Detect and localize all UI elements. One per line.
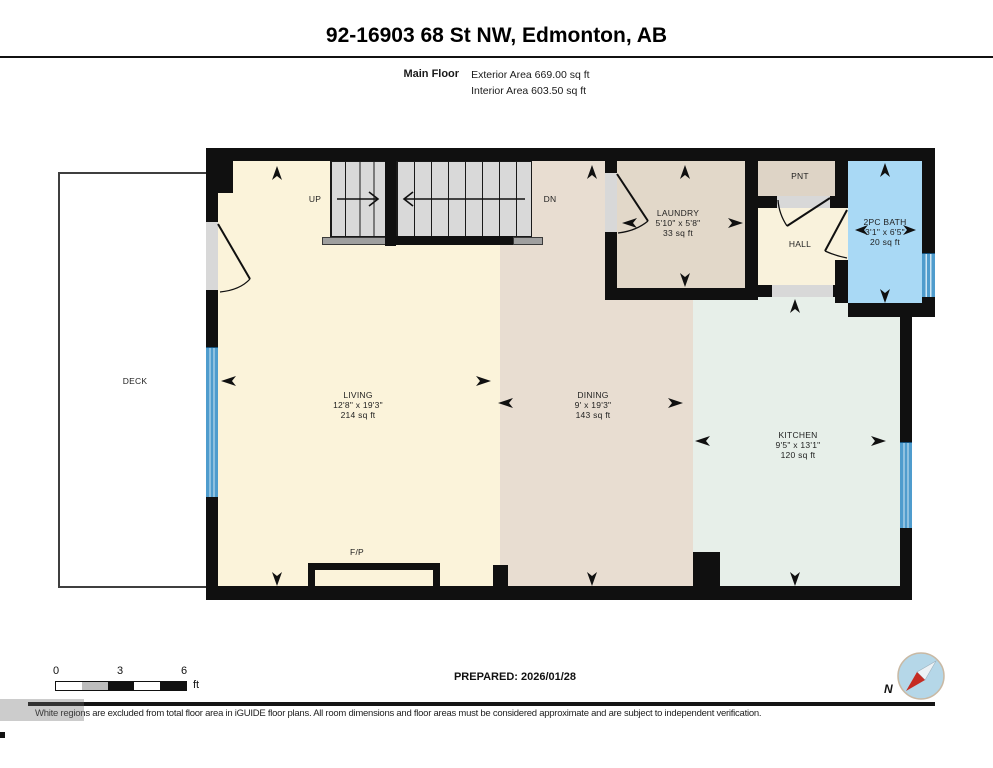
scale-seg-4: [134, 682, 160, 690]
stairs-down: [396, 161, 532, 237]
floor-summary: Main Floor Exterior Area 669.00 sq ft In…: [0, 67, 993, 99]
bath-window: [922, 253, 935, 299]
wall-bath-bottom: [848, 303, 935, 317]
wall-stub-dining-kitchen: [693, 552, 720, 586]
disclaimer-text: White regions are excluded from total fl…: [35, 708, 955, 719]
laundry-label: LAUNDRY5'10" x 5'8"33 sq ft: [618, 208, 738, 238]
dining-label: DINING9' x 19'3"143 sq ft: [533, 390, 653, 420]
pantry-door-opening: [777, 196, 830, 208]
fireplace-label: F/P: [327, 547, 387, 557]
wall-top-left-block: [206, 148, 233, 193]
wall-kitchen-right-a: [900, 303, 912, 442]
wall-left-c: [206, 497, 218, 600]
stairs-down-label: DN: [530, 194, 570, 204]
deck-label: DECK: [75, 376, 195, 386]
wall-left-b: [206, 290, 218, 347]
scale-seg-1: [56, 682, 82, 690]
stair-landing-right: [513, 237, 543, 245]
pantry-label: PNT: [765, 171, 835, 181]
wall-stub-living-dining: [493, 565, 508, 586]
prepared-date: PREPARED: 2026/01/28: [400, 671, 630, 683]
wall-laundry-bottom: [605, 288, 758, 300]
artifact-smudge: [0, 699, 84, 721]
title-divider: [0, 56, 993, 58]
scale-tick-6: 6: [181, 665, 187, 677]
wall-bath-left-b: [835, 260, 848, 303]
scale-seg-3: [108, 682, 134, 690]
living-window: [206, 347, 218, 499]
fireplace: [308, 563, 440, 586]
floor-areas: Exterior Area 669.00 sq ft Interior Area…: [471, 67, 589, 99]
compass-icon: [893, 648, 949, 704]
artifact-corner-mark: [0, 732, 5, 738]
scale-tick-3: 3: [117, 665, 123, 677]
wall-bath-left-a: [835, 161, 848, 208]
compass-north-label: N: [884, 682, 893, 696]
deck-door-opening: [206, 222, 218, 290]
hall-kitchen-opening: [772, 285, 833, 297]
interior-area: Interior Area 603.50 sq ft: [471, 83, 589, 99]
living-label: LIVING12'8" x 19'3"214 sq ft: [298, 390, 418, 420]
wall-pantry-bottom-a: [758, 196, 777, 208]
stairs-up-label: UP: [295, 194, 335, 204]
wall-bottom: [206, 586, 912, 600]
floor-plan-page: 92-16903 68 St NW, Edmonton, AB Main Flo…: [0, 0, 993, 768]
scale-seg-5: [160, 682, 186, 690]
footer-divider: [28, 702, 935, 706]
scale-tick-0: 0: [53, 665, 59, 677]
wall-stair-divider: [385, 161, 396, 246]
bath-label: 2PC BATH3'1" x 6'5"20 sq ft: [825, 217, 945, 247]
floor-label: Main Floor: [403, 67, 459, 99]
page-title: 92-16903 68 St NW, Edmonton, AB: [0, 24, 993, 48]
scale-unit: ft: [193, 679, 199, 691]
wall-hall-bottom-a: [758, 285, 772, 297]
exterior-area: Exterior Area 669.00 sq ft: [471, 67, 589, 83]
scale-bar: [55, 681, 187, 691]
wall-left-a: [206, 193, 218, 222]
stairs-up: [330, 161, 387, 237]
stair-landing-left: [322, 237, 387, 245]
kitchen-window: [900, 442, 912, 530]
hall-label: HALL: [765, 239, 835, 249]
wall-kitchen-right-b: [900, 528, 912, 600]
wall-top: [206, 148, 935, 161]
scale-seg-2: [82, 682, 108, 690]
kitchen-label: KITCHEN9'5" x 13'1"120 sq ft: [738, 430, 858, 460]
wall-stair-bottom: [396, 236, 513, 245]
wall-laundry-left-a: [605, 161, 617, 173]
wall-laundry-pantry-divider: [745, 161, 758, 300]
laundry-door-opening: [605, 173, 617, 232]
